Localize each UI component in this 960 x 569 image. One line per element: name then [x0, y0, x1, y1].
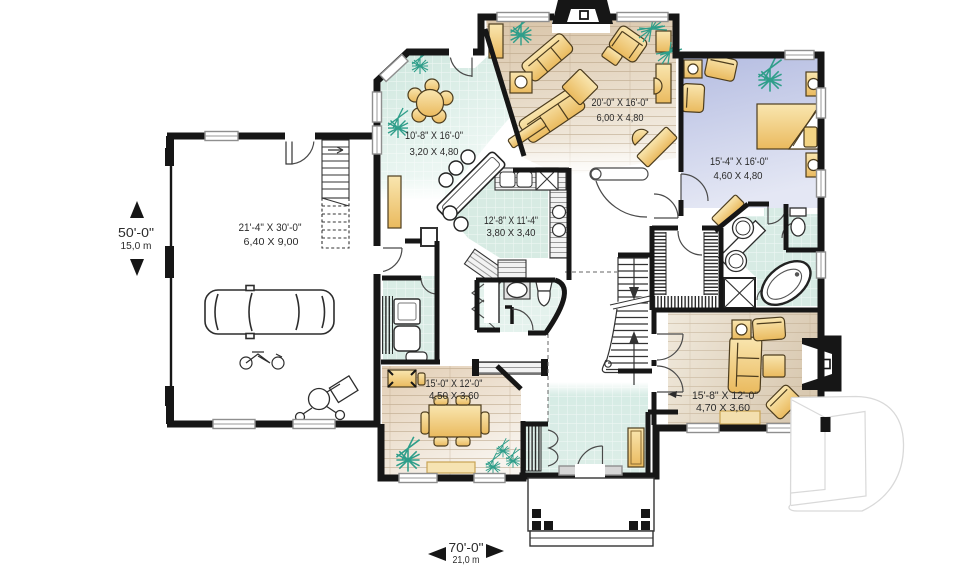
svg-text:15'-0" X 12'-0": 15'-0" X 12'-0": [426, 378, 483, 390]
svg-text:70'-0": 70'-0": [449, 541, 484, 555]
svg-text:12'-8" X 11'-4": 12'-8" X 11'-4": [484, 215, 538, 227]
svg-text:15,0 m: 15,0 m: [121, 241, 152, 252]
svg-text:15'-4" X 16'-0": 15'-4" X 16'-0": [710, 156, 768, 168]
svg-text:15'-8" X 12'-0": 15'-8" X 12'-0": [692, 390, 758, 402]
svg-text:50'-0": 50'-0": [118, 226, 154, 240]
svg-text:3,80 X 3,40: 3,80 X 3,40: [487, 228, 536, 239]
svg-text:21'-4" X 30'-0": 21'-4" X 30'-0": [239, 222, 302, 234]
svg-text:4,50 X 3,60: 4,50 X 3,60: [429, 391, 479, 402]
svg-text:10'-8" X 16'-0": 10'-8" X 16'-0": [405, 130, 463, 142]
svg-text:21,0 m: 21,0 m: [453, 555, 480, 566]
svg-text:6,00 X 4,80: 6,00 X 4,80: [597, 113, 644, 124]
svg-text:20'-0" X 16'-0": 20'-0" X 16'-0": [592, 97, 649, 109]
svg-text:4,60 X 4,80: 4,60 X 4,80: [714, 171, 763, 182]
svg-text:3,20 X 4,80: 3,20 X 4,80: [410, 147, 459, 158]
svg-text:6,40 X 9,00: 6,40 X 9,00: [244, 237, 299, 248]
svg-text:4,70 X 3,60: 4,70 X 3,60: [696, 403, 750, 414]
